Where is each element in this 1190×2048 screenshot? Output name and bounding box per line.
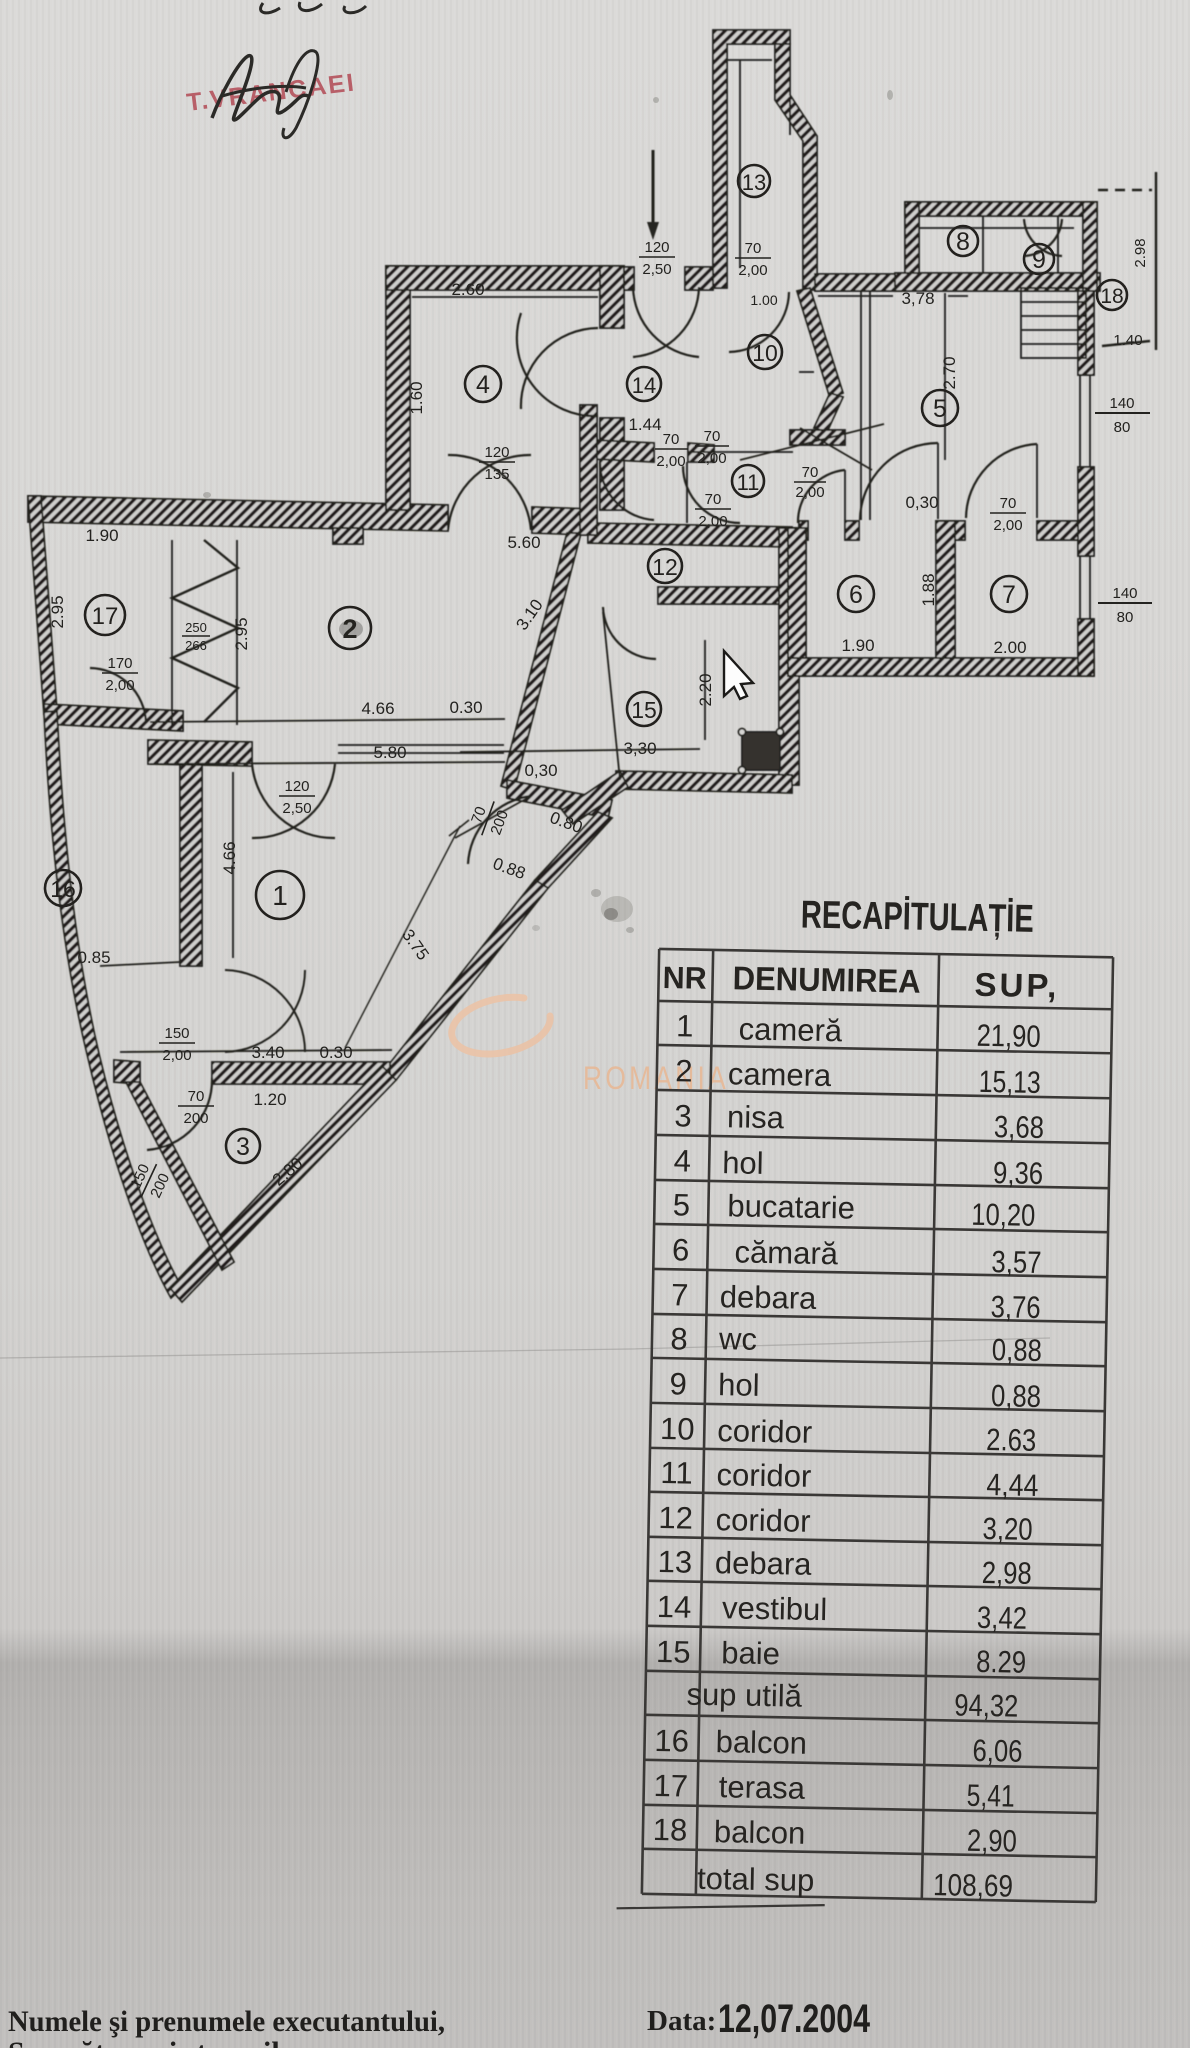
svg-text:cămară: cămară [734, 1234, 839, 1271]
svg-text:bucatarie: bucatarie [727, 1188, 855, 1225]
svg-text:9: 9 [669, 1366, 687, 1401]
svg-text:2,00: 2,00 [697, 450, 726, 467]
svg-text:266: 266 [185, 638, 207, 653]
svg-text:17: 17 [92, 603, 119, 630]
svg-text:DENUMIREA: DENUMIREA [732, 959, 921, 999]
svg-text:wc: wc [718, 1321, 758, 1357]
svg-text:0,30: 0,30 [905, 493, 938, 512]
svg-text:0.30: 0.30 [449, 698, 482, 717]
svg-text:120: 120 [484, 444, 509, 461]
svg-text:hol: hol [722, 1145, 764, 1181]
svg-text:2,00: 2,00 [993, 517, 1022, 534]
svg-text:70: 70 [745, 240, 762, 257]
svg-text:0,88: 0,88 [991, 1378, 1042, 1414]
svg-text:1.60: 1.60 [407, 381, 426, 414]
svg-text:70: 70 [704, 428, 721, 445]
svg-text:3,78: 3,78 [901, 289, 934, 308]
svg-text:10: 10 [752, 340, 778, 366]
svg-text:5,41: 5,41 [966, 1778, 1015, 1814]
svg-text:6: 6 [672, 1232, 690, 1267]
svg-text:baie: baie [721, 1635, 780, 1671]
svg-text:3,57: 3,57 [991, 1244, 1042, 1280]
svg-text:2,00: 2,00 [656, 453, 685, 470]
svg-text:2,00: 2,00 [162, 1047, 191, 1064]
svg-text:140: 140 [1109, 395, 1134, 412]
svg-text:3: 3 [674, 1098, 692, 1133]
svg-text:cameră: cameră [738, 1011, 843, 1048]
svg-text:2.95: 2.95 [232, 617, 251, 650]
svg-text:16: 16 [654, 1723, 689, 1759]
svg-text:5: 5 [673, 1187, 691, 1222]
svg-text:1: 1 [272, 880, 288, 911]
svg-text:balcon: balcon [715, 1724, 807, 1761]
svg-text:camera: camera [728, 1056, 833, 1093]
svg-text:70: 70 [705, 491, 722, 508]
svg-text:120: 120 [644, 239, 669, 256]
svg-text:2.98: 2.98 [1132, 238, 1149, 267]
svg-text:sup utilă: sup utilă [686, 1677, 803, 1714]
svg-text:13: 13 [657, 1544, 692, 1580]
svg-text:1.00: 1.00 [750, 292, 777, 308]
svg-text:2,00: 2,00 [738, 262, 767, 279]
svg-text:debara: debara [719, 1279, 817, 1316]
svg-text:4.66: 4.66 [361, 699, 394, 718]
svg-text:18: 18 [652, 1812, 687, 1848]
svg-text:2,50: 2,50 [642, 261, 671, 278]
svg-text:3,30: 3,30 [623, 739, 656, 758]
svg-text:2,00: 2,00 [795, 484, 824, 501]
svg-text:250: 250 [185, 620, 207, 635]
svg-text:1.90: 1.90 [85, 526, 118, 545]
svg-text:0,88: 0,88 [992, 1332, 1043, 1368]
svg-text:debara: debara [715, 1545, 813, 1582]
svg-text:4,44: 4,44 [986, 1467, 1039, 1503]
svg-text:15,13: 15,13 [978, 1064, 1041, 1100]
svg-text:70: 70 [188, 1088, 205, 1105]
svg-text:9: 9 [1032, 246, 1046, 274]
svg-text:coridor: coridor [715, 1502, 810, 1539]
svg-text:3,68: 3,68 [994, 1109, 1045, 1145]
svg-text:18: 18 [1100, 285, 1123, 308]
svg-text:150: 150 [164, 1025, 189, 1042]
svg-text:12: 12 [652, 554, 678, 580]
svg-text:2.00: 2.00 [993, 638, 1026, 657]
svg-text:9,36: 9,36 [993, 1155, 1044, 1191]
svg-text:1.44: 1.44 [628, 415, 661, 434]
svg-text:Numele şi prenumele executantu: Numele şi prenumele executantului, [8, 2005, 445, 2038]
svg-text:3,42: 3,42 [977, 1600, 1028, 1636]
svg-text:200: 200 [183, 1110, 208, 1127]
svg-text:2,90: 2,90 [967, 1823, 1018, 1859]
svg-text:0.85: 0.85 [77, 948, 110, 967]
svg-text:vestibul: vestibul [722, 1590, 828, 1627]
svg-text:3.40: 3.40 [251, 1043, 284, 1062]
svg-text:3,20: 3,20 [982, 1511, 1033, 1547]
svg-text:14: 14 [632, 373, 656, 398]
svg-text:2: 2 [675, 1053, 693, 1088]
svg-text:8.29: 8.29 [976, 1644, 1027, 1680]
svg-text:1: 1 [676, 1008, 694, 1043]
svg-text:3: 3 [236, 1133, 250, 1161]
svg-text:5.60: 5.60 [507, 533, 540, 552]
svg-text:16: 16 [50, 876, 76, 902]
svg-text:1.40: 1.40 [1113, 332, 1142, 349]
svg-text:1.90: 1.90 [841, 636, 874, 655]
svg-text:0,30: 0,30 [524, 761, 557, 780]
svg-text:3,76: 3,76 [990, 1289, 1041, 1325]
svg-text:140: 140 [1112, 585, 1137, 602]
svg-text:120: 120 [284, 778, 309, 795]
svg-text:80: 80 [1114, 419, 1131, 436]
svg-text:nisa: nisa [727, 1099, 785, 1135]
svg-text:7: 7 [671, 1277, 689, 1312]
svg-text:80: 80 [1117, 609, 1134, 626]
svg-text:2,98: 2,98 [981, 1555, 1032, 1591]
svg-text:coridor: coridor [716, 1457, 811, 1494]
svg-text:NR: NR [662, 960, 707, 996]
svg-text:4: 4 [476, 371, 490, 399]
svg-text:2.20: 2.20 [696, 673, 715, 706]
svg-text:2.70: 2.70 [940, 356, 959, 389]
svg-text:70: 70 [663, 431, 680, 448]
svg-text:0.30: 0.30 [319, 1043, 352, 1062]
svg-text:15: 15 [656, 1634, 691, 1670]
svg-text:17: 17 [653, 1768, 688, 1804]
svg-text:hol: hol [718, 1367, 760, 1403]
svg-text:8: 8 [670, 1321, 688, 1356]
svg-text:5.80: 5.80 [373, 743, 406, 762]
svg-text:coridor: coridor [717, 1413, 812, 1450]
svg-text:70: 70 [802, 464, 819, 481]
svg-text:terasa: terasa [719, 1769, 807, 1806]
svg-text:15: 15 [631, 697, 657, 723]
svg-text:170: 170 [107, 655, 132, 672]
svg-text:balcon: balcon [714, 1814, 806, 1851]
svg-text:2,50: 2,50 [282, 800, 311, 817]
svg-text:2,00: 2,00 [698, 513, 727, 530]
svg-text:2.63: 2.63 [986, 1422, 1037, 1458]
svg-text:2.95: 2.95 [48, 595, 67, 628]
svg-text:10,20: 10,20 [971, 1197, 1036, 1233]
svg-text:6,06: 6,06 [972, 1733, 1023, 1769]
svg-text:Data:: Data: [647, 2005, 716, 2037]
svg-text:12,07.2004: 12,07.2004 [718, 1997, 871, 2041]
svg-text:1.20: 1.20 [253, 1090, 286, 1109]
svg-text:70: 70 [1000, 495, 1017, 512]
svg-text:11: 11 [737, 470, 760, 495]
svg-text:12: 12 [658, 1500, 693, 1536]
svg-text:Semnătura şi ştampila: Semnătura şi ştampila [8, 2036, 295, 2048]
svg-text:135: 135 [484, 466, 509, 483]
svg-text:10: 10 [660, 1411, 695, 1447]
svg-text:94,32: 94,32 [954, 1687, 1019, 1723]
svg-text:4.66: 4.66 [220, 841, 239, 874]
svg-text:4: 4 [673, 1143, 691, 1178]
svg-text:8: 8 [956, 228, 970, 256]
svg-text:21,90: 21,90 [976, 1018, 1041, 1054]
svg-text:108,69: 108,69 [933, 1867, 1014, 1903]
svg-text:SUP,: SUP, [974, 966, 1059, 1005]
svg-text:6: 6 [849, 581, 863, 609]
svg-text:11: 11 [660, 1455, 693, 1491]
svg-text:total sup: total sup [697, 1861, 815, 1898]
svg-text:7: 7 [1002, 581, 1016, 609]
svg-text:13: 13 [742, 170, 766, 195]
svg-text:5: 5 [933, 395, 947, 423]
svg-text:RECAPİTULAȚİE: RECAPİTULAȚİE [800, 894, 1034, 941]
svg-text:14: 14 [657, 1589, 692, 1625]
svg-text:2.60: 2.60 [451, 280, 484, 299]
svg-text:2,00: 2,00 [105, 677, 134, 694]
svg-text:1.88: 1.88 [919, 573, 938, 606]
